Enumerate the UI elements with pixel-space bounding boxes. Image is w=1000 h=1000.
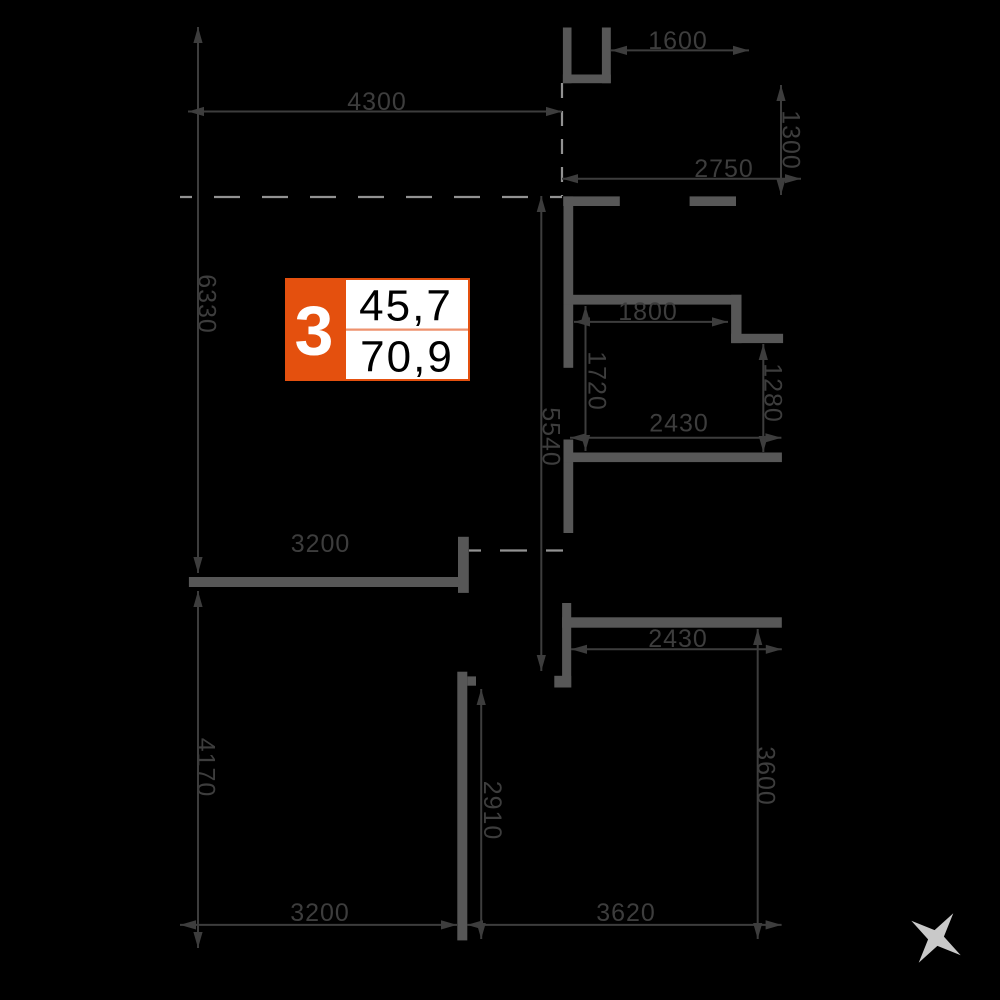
svg-text:3: 3 <box>295 292 335 370</box>
svg-text:6330: 6330 <box>192 274 220 334</box>
svg-text:3200: 3200 <box>290 899 350 927</box>
svg-text:4170: 4170 <box>191 738 219 798</box>
svg-text:3620: 3620 <box>596 899 656 927</box>
svg-text:1720: 1720 <box>582 351 610 411</box>
svg-text:1280: 1280 <box>758 363 786 423</box>
svg-text:3200: 3200 <box>291 530 351 558</box>
svg-text:4300: 4300 <box>347 88 407 116</box>
svg-text:1800: 1800 <box>618 298 678 326</box>
svg-text:2910: 2910 <box>478 781 506 841</box>
svg-text:2430: 2430 <box>649 410 709 438</box>
svg-text:3600: 3600 <box>751 746 779 806</box>
svg-text:5540: 5540 <box>536 407 564 467</box>
svg-text:70,9: 70,9 <box>360 333 454 382</box>
svg-text:1600: 1600 <box>648 27 708 55</box>
svg-text:45,7: 45,7 <box>359 282 453 331</box>
svg-text:1300: 1300 <box>776 110 804 170</box>
svg-text:2750: 2750 <box>694 155 754 183</box>
svg-text:2430: 2430 <box>648 625 708 653</box>
